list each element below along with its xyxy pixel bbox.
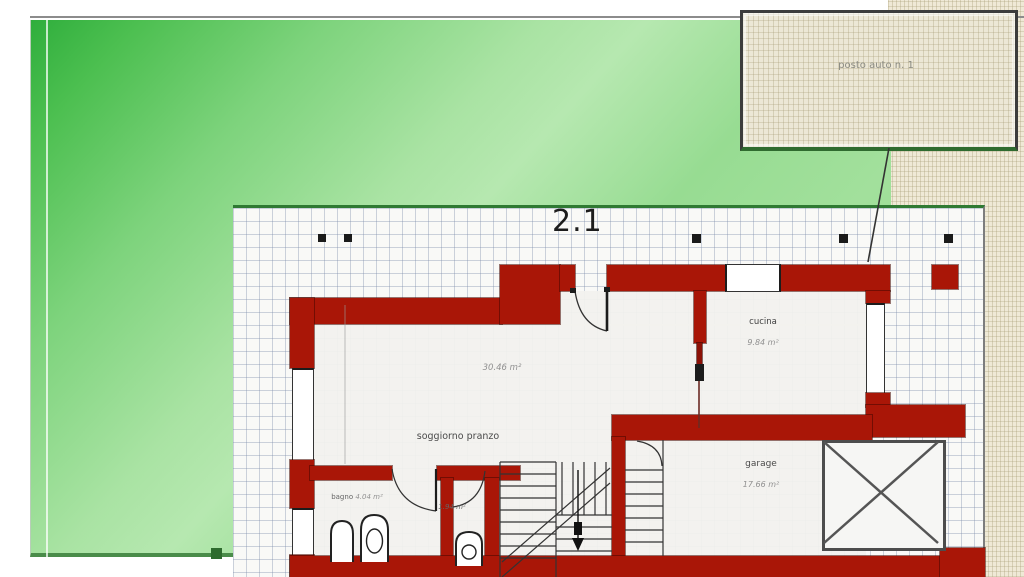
toilet-symbol (331, 521, 353, 562)
kitchen-label: cucina (728, 317, 798, 327)
wc-symbol (456, 532, 482, 566)
living-room-label: soggiorno pranzo (398, 431, 518, 442)
floor-plan-drawing: 2.1 posto auto n. 1 30.46 m² soggiorno p… (0, 0, 1024, 577)
bidet-symbol (361, 515, 388, 562)
garage-ramp-x (824, 442, 938, 543)
garage-label: garage (726, 459, 796, 469)
floor-plan-number: 2.1 (552, 204, 603, 239)
bath-label: bagno 4.04 m² (322, 493, 392, 501)
parking-space-label: posto auto n. 1 (770, 60, 982, 71)
storage-area: 1.94 m² (430, 503, 474, 511)
living-room-area: 30.46 m² (462, 363, 542, 373)
stair-direction-arrow (572, 470, 584, 551)
staircase (500, 440, 663, 577)
leader-line (868, 148, 889, 262)
garage-area: 17.66 m² (726, 480, 796, 489)
bath-name: bagno (331, 493, 353, 501)
bath-area: 4.04 m² (355, 493, 382, 501)
kitchen-area: 9.84 m² (728, 338, 798, 347)
linework-overlay (0, 0, 1024, 577)
garage-door-arc (637, 441, 662, 466)
storage-door-arc (453, 471, 485, 507)
entry-door-arc (570, 287, 610, 331)
kitchen-door (695, 364, 704, 428)
